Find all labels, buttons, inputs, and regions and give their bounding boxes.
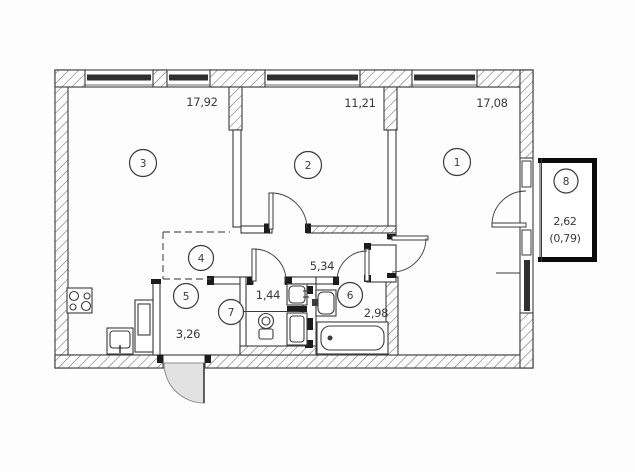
wall-pier: [153, 70, 167, 87]
washing-machine-symbol: [287, 313, 307, 345]
refrigerator-symbol: [135, 300, 153, 352]
room1-marker: 1: [444, 149, 471, 176]
left-wall: [55, 70, 68, 368]
bathtub-symbol: [317, 322, 388, 354]
window-symbol: [522, 161, 531, 187]
room5-marker: 5: [174, 284, 199, 309]
stove-symbol: [67, 288, 92, 313]
corridor-area-label: 5,34: [310, 259, 334, 273]
wall-wc-bottom: [240, 346, 316, 355]
wall-room2-room1: [388, 130, 396, 231]
room-markers: 3 2 1 8 4 5 7 6: [130, 149, 579, 325]
kitchen-sink-symbol: [107, 328, 133, 354]
wall-pier: [210, 70, 265, 87]
wall-room2-room1: [384, 87, 397, 130]
door-wc: [252, 249, 286, 281]
door-room2: [269, 193, 307, 229]
floor-plan-drawing: 3 2 1 8 4 5 7 6: [0, 0, 635, 472]
room6-number: 6: [347, 290, 354, 302]
wall-room3-room2: [233, 130, 241, 227]
room8-marker: 8: [554, 169, 578, 193]
window-symbol: [522, 230, 531, 255]
room8-number: 8: [563, 176, 569, 188]
room2-area-label: 11,21: [344, 96, 375, 110]
toilet-symbol: [259, 314, 274, 340]
wall-pier: [205, 355, 533, 368]
room7-area-label: 1,44: [256, 288, 280, 302]
wall-room3-room2: [229, 87, 242, 130]
room1-area-label: 17,08: [476, 96, 507, 110]
wall-room2-bottom: [307, 226, 396, 233]
room3-marker: 3: [130, 150, 157, 177]
wall-pier: [55, 70, 85, 87]
room5-number: 5: [183, 291, 189, 303]
room2-marker: 2: [295, 152, 322, 179]
room7-number: 7: [228, 307, 234, 319]
wall-pier: [360, 70, 412, 87]
room1-number: 1: [454, 157, 460, 169]
door-room1: [392, 236, 428, 272]
wall-pier: [520, 70, 533, 158]
interior-walls: [153, 87, 398, 355]
room6-marker: 6: [338, 283, 363, 308]
wall-kitchen-room5: [153, 282, 160, 355]
room5-area-label: 3,26: [176, 327, 200, 341]
wall-wc-top: [210, 277, 253, 284]
bath-washbasin-symbol: [312, 290, 336, 316]
room4-marker: 4: [189, 246, 214, 271]
room2-number: 2: [305, 160, 311, 172]
windows: [85, 75, 531, 312]
wc-washbasin-symbol: [287, 284, 309, 305]
floor-plan-canvas: 3 2 1 8 4 5 7 6: [0, 0, 635, 472]
room6-area-label: 2,98: [364, 306, 388, 320]
room3-area-label: 17,92: [186, 95, 217, 109]
wall-pier: [520, 313, 533, 368]
entrance-door-symbol: [164, 363, 204, 403]
wall-pier: [55, 355, 163, 368]
room8-area-label: 2,62: [553, 215, 576, 228]
room4-number: 4: [198, 253, 205, 265]
room3-number: 3: [140, 158, 146, 170]
window-symbol: [524, 260, 530, 311]
room8-area-secondary-label: (0,79): [549, 232, 580, 245]
kitchen-fixtures: [67, 288, 153, 354]
